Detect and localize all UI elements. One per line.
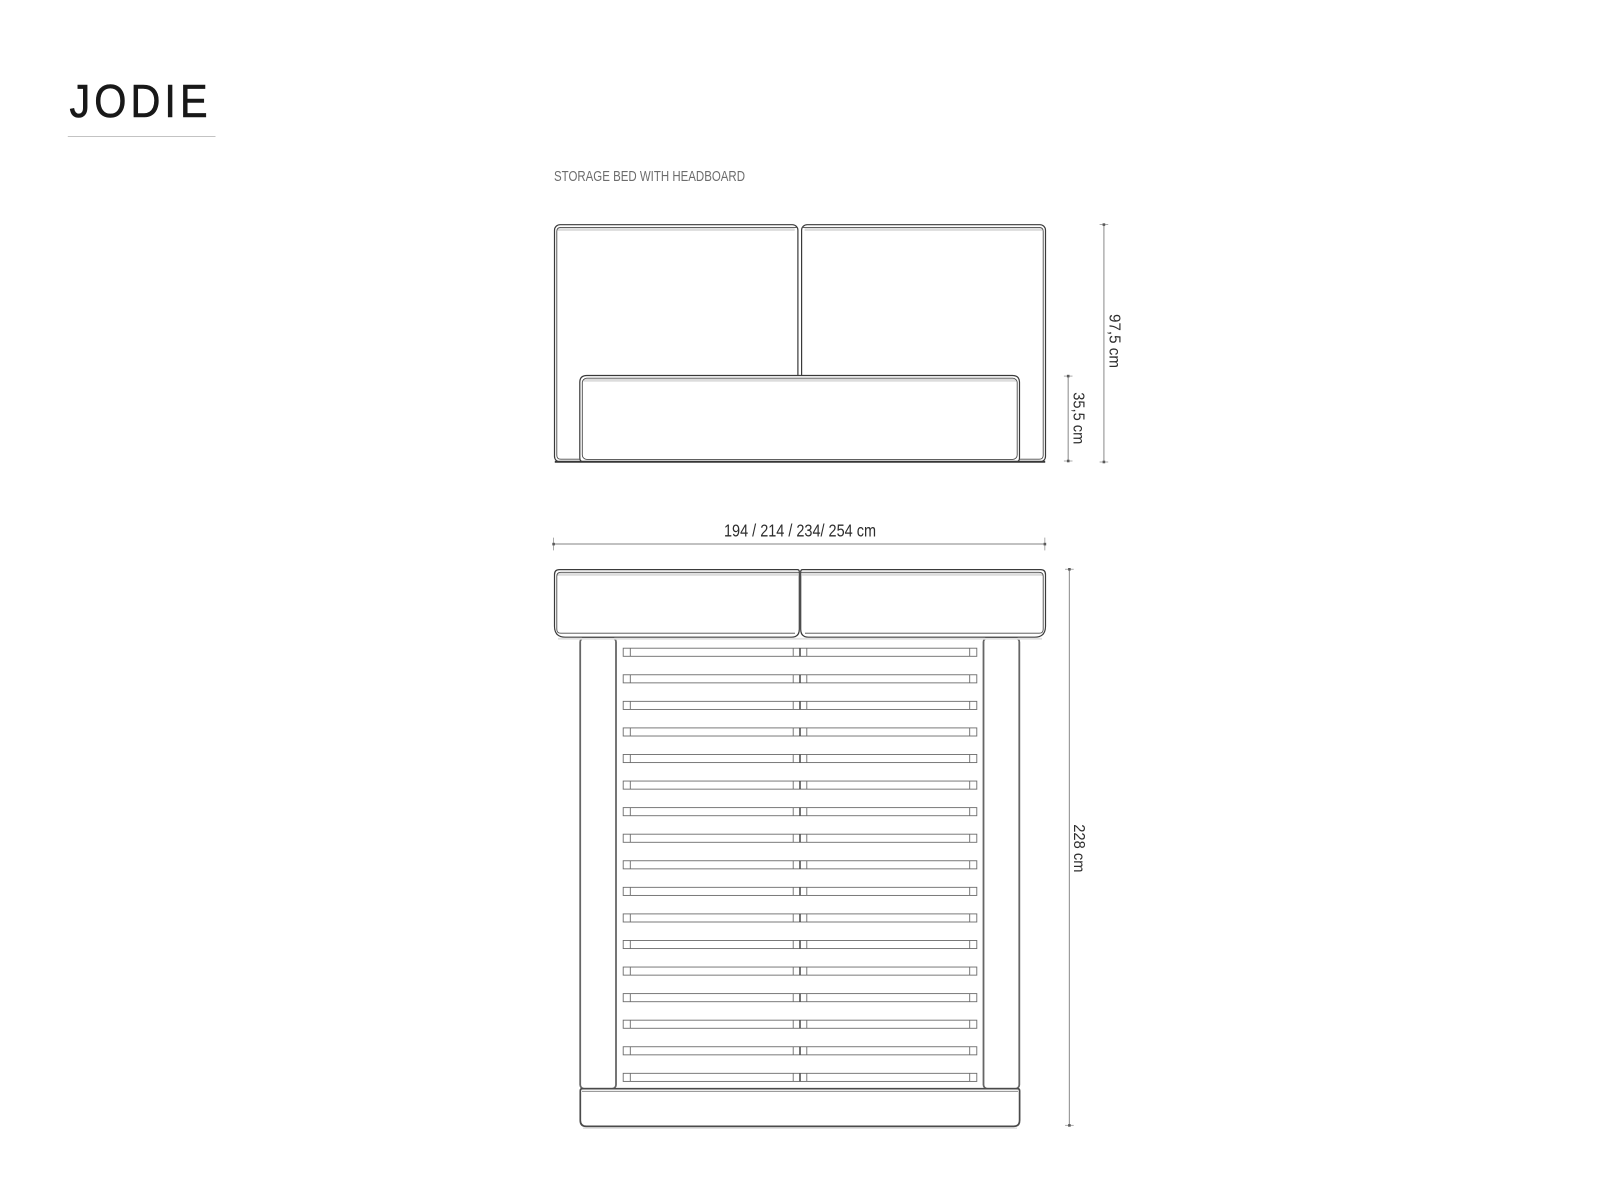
svg-text:97,5 cm: 97,5 cm (1106, 314, 1123, 368)
svg-text:JODIE: JODIE (70, 76, 212, 128)
svg-text:35,5 cm: 35,5 cm (1070, 392, 1087, 444)
svg-text:228 cm: 228 cm (1070, 824, 1087, 872)
svg-text:194 / 214 / 234/ 254 cm: 194 / 214 / 234/ 254 cm (724, 520, 876, 540)
svg-text:STORAGE BED WITH HEADBOARD: STORAGE BED WITH HEADBOARD (554, 168, 745, 185)
